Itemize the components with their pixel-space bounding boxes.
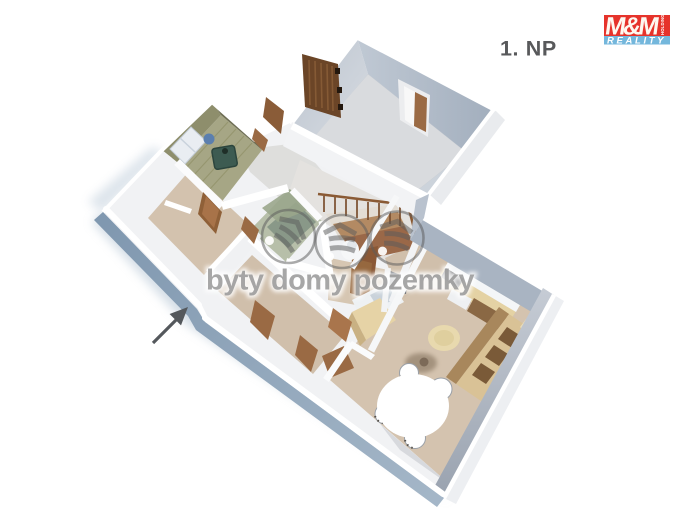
svg-text:REALITY: REALITY bbox=[607, 36, 666, 47]
svg-text:HOLDING: HOLDING bbox=[660, 14, 665, 35]
svg-text:byty domy pozemky: byty domy pozemky bbox=[206, 265, 474, 297]
svg-text:1. NP: 1. NP bbox=[500, 37, 557, 61]
